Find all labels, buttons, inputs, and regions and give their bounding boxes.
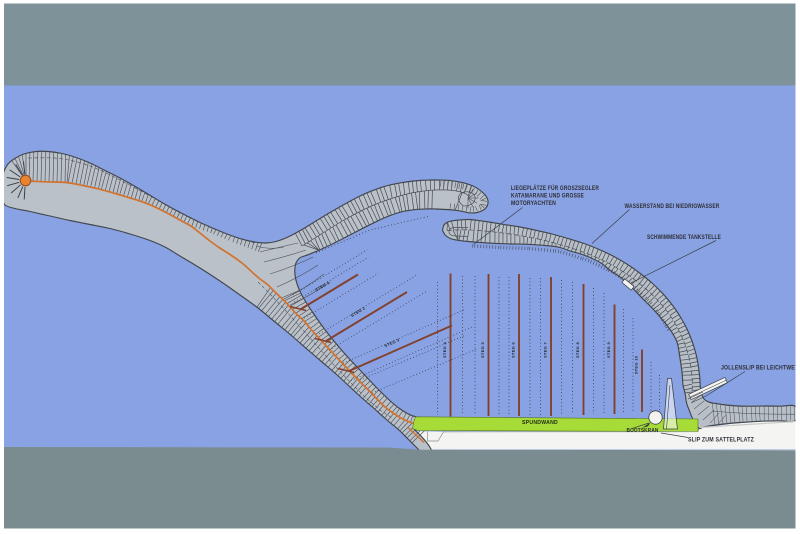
svg-text:STEG 8: STEG 8	[575, 342, 580, 359]
svg-text:STEG 4: STEG 4	[442, 342, 447, 359]
svg-text:JOLLENSLIP BEI LEICHTWETTER: JOLLENSLIP BEI LEICHTWETTER	[721, 366, 800, 372]
svg-text:WASSERSTAND BEI NIEDRIGWASSER: WASSERSTAND BEI NIEDRIGWASSER	[625, 204, 720, 210]
svg-text:SPUNDWAND: SPUNDWAND	[522, 420, 558, 426]
svg-text:STEG 6: STEG 6	[511, 342, 516, 359]
svg-text:MOTORYACHTEN: MOTORYACHTEN	[511, 201, 556, 207]
svg-text:LIEGEPLÄTZE FÜR GROSZSEGLER: LIEGEPLÄTZE FÜR GROSZSEGLER	[511, 185, 599, 192]
svg-text:SCHWIMMENDE TANKSTELLE: SCHWIMMENDE TANKSTELLE	[647, 235, 721, 241]
svg-text:BOOTSKRAN: BOOTSKRAN	[627, 428, 659, 434]
svg-text:SLIP ZUM SATTELPLATZ: SLIP ZUM SATTELPLATZ	[688, 437, 754, 444]
svg-text:STEG 5: STEG 5	[480, 342, 485, 359]
svg-text:STEG 10: STEG 10	[634, 355, 639, 374]
svg-text:STEG 9: STEG 9	[606, 342, 611, 359]
svg-text:KATAMARANE UND GROSSE: KATAMARANE UND GROSSE	[511, 194, 584, 200]
svg-text:STEG 7: STEG 7	[543, 342, 548, 359]
